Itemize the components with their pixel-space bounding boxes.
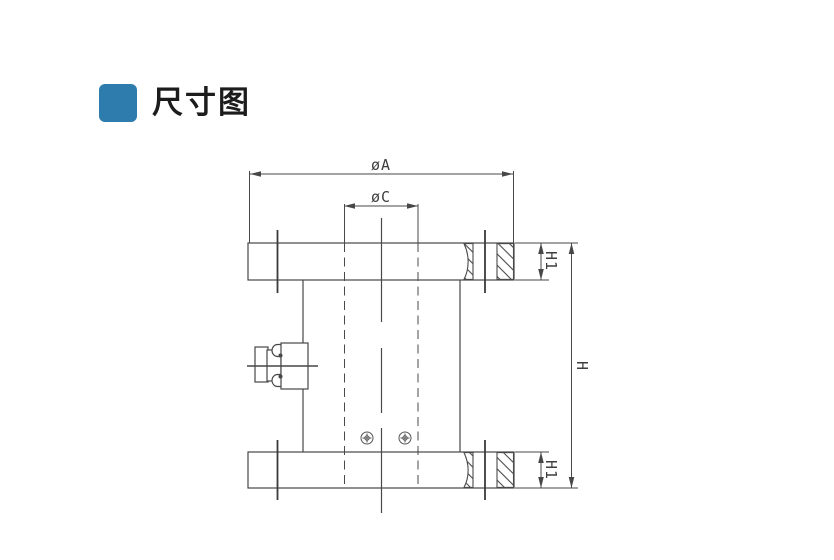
hatch-bottom-right — [497, 453, 514, 488]
screw-head-right — [399, 432, 411, 444]
screw-head-left — [361, 432, 373, 444]
label-flange-thickness-top: H1 — [542, 251, 560, 271]
label-outer-diameter: øA — [371, 156, 391, 174]
cable-connector — [247, 343, 318, 389]
hatch-top-right — [497, 244, 514, 280]
label-bolt-circle-diameter: øC — [371, 188, 391, 206]
screw-heads — [361, 432, 411, 444]
dimension-drawing: øA øC H1 H1 H — [0, 0, 834, 555]
label-total-height: H — [573, 361, 591, 371]
dimension-drawing-container: øA øC H1 H1 H — [0, 0, 834, 555]
connector-nut — [255, 347, 268, 382]
label-flange-thickness-bottom: H1 — [542, 460, 560, 480]
